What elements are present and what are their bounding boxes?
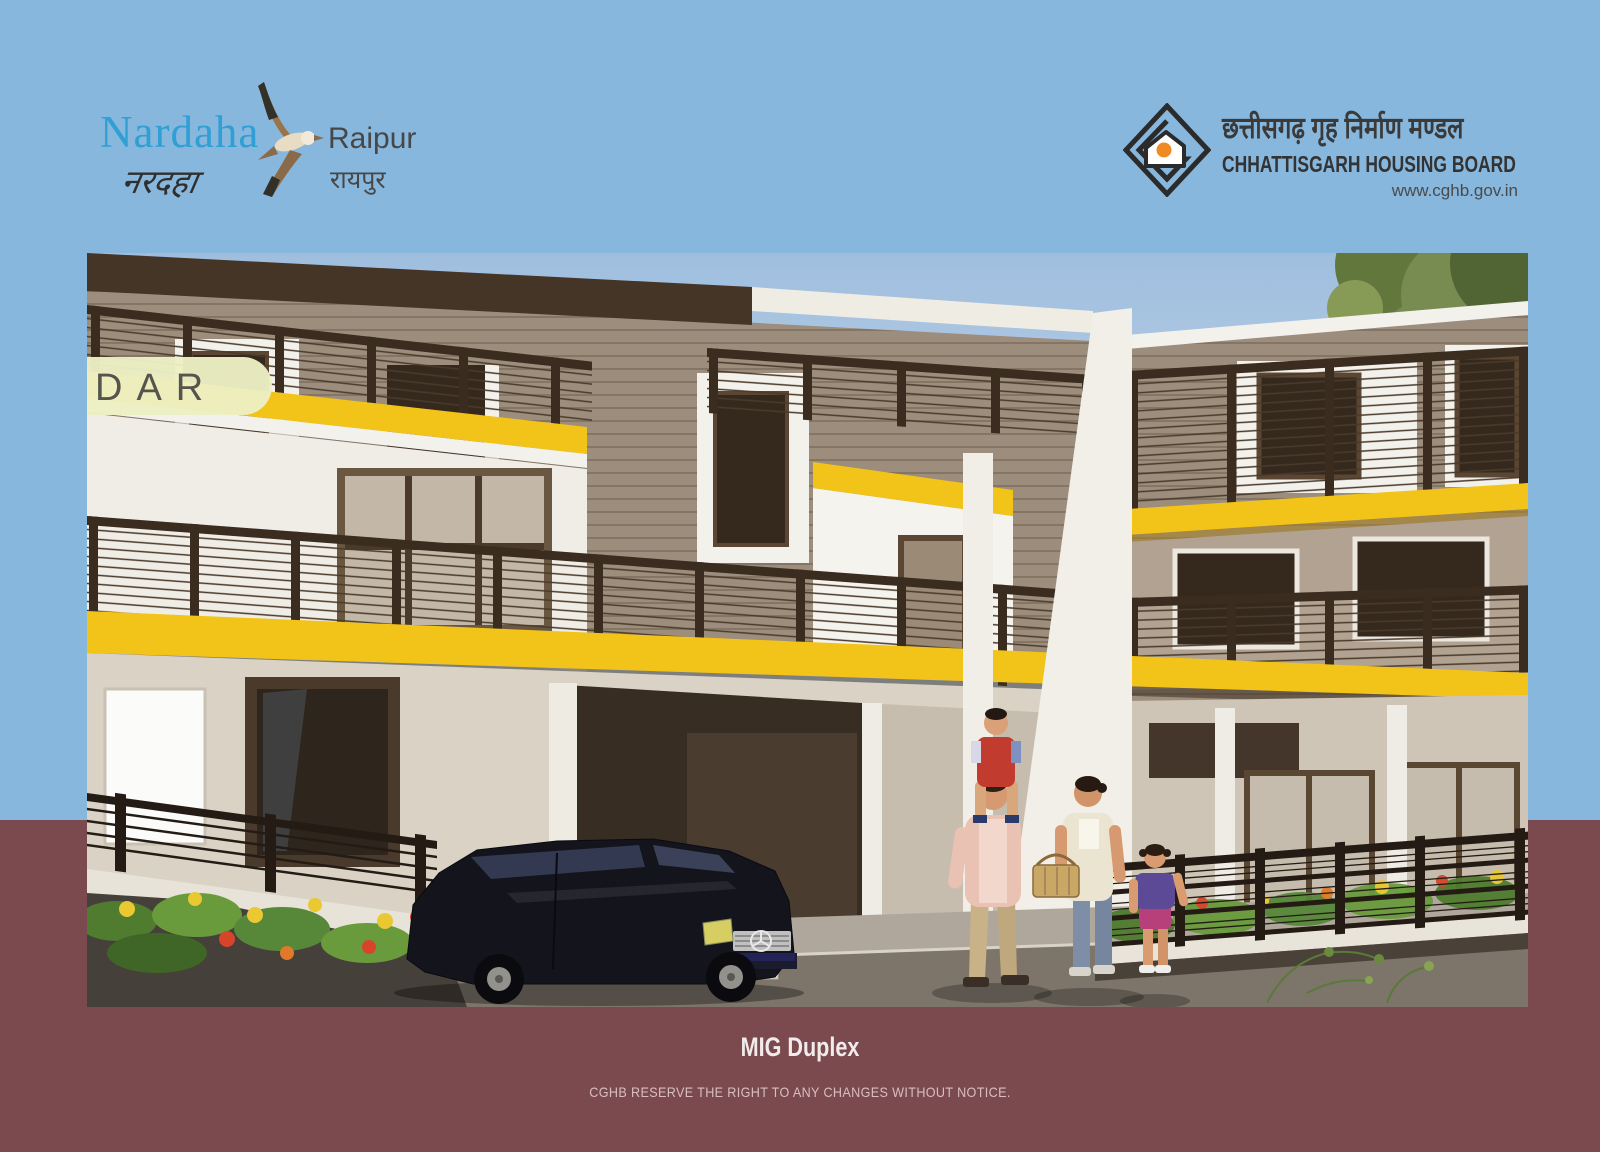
project-title: MIG Duplex [160,1032,1440,1063]
raipur-label: Raipur [328,122,416,156]
cghb-logo-block: छत्तीसगढ़ गृह निर्माण मण्डल CHHATTISGARH… [1118,98,1522,206]
cghb-website: www.cghb.gov.in [1222,181,1518,201]
nardaha-name: Nardaha [100,106,259,158]
watermark-label: DAR [87,357,272,415]
cghb-name-english: CHHATTISGARH HOUSING BOARD [1222,151,1450,178]
flying-bird-icon [250,80,324,200]
disclaimer-text: CGHB RESERVE THE RIGHT TO ANY CHANGES WI… [80,1084,1520,1100]
nardaha-name-devanagari: नरदहा [118,158,201,203]
building-rendering-image: DAR [87,253,1528,1007]
diamond-house-logo-icon [1123,103,1211,197]
raipur-label-devanagari: रायपुर [330,162,386,196]
nardaha-logo: Nardaha नरदहा Raipur रायपुर [98,78,438,208]
watermark-text: DAR [95,367,217,409]
cghb-name-devanagari: छत्तीसगढ़ गृह निर्माण मण्डल [1222,106,1462,147]
building-right-block [1127,301,1528,713]
